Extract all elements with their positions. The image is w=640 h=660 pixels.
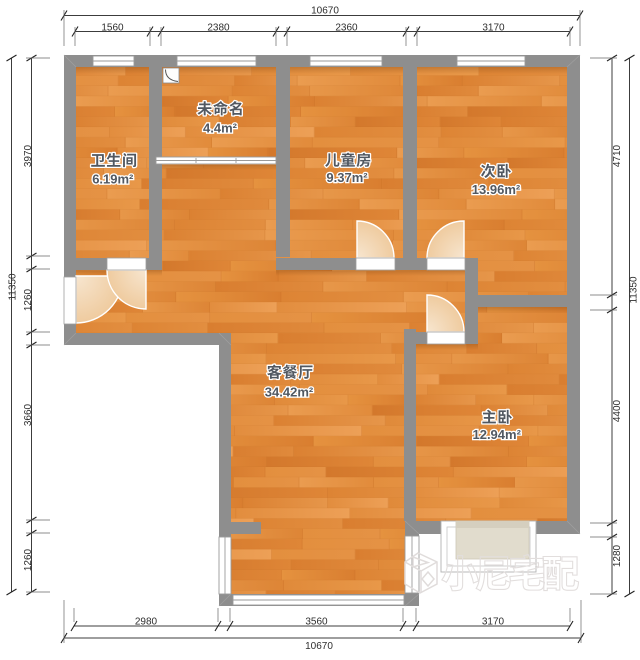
svg-text:3660: 3660	[23, 403, 34, 426]
svg-text:3170: 3170	[482, 22, 505, 33]
svg-text:1280: 1280	[612, 544, 623, 567]
svg-text:4400: 4400	[612, 399, 623, 422]
svg-text:10670: 10670	[305, 641, 333, 652]
svg-text:2360: 2360	[335, 22, 358, 33]
svg-text:34.42m²: 34.42m²	[265, 385, 314, 400]
svg-text:4.4m²: 4.4m²	[203, 121, 238, 136]
svg-text:1560: 1560	[101, 22, 124, 33]
svg-text:3560: 3560	[305, 616, 328, 627]
svg-text:13.96m²: 13.96m²	[472, 182, 521, 197]
svg-text:11350: 11350	[629, 276, 640, 304]
svg-text:6.19m²: 6.19m²	[92, 172, 134, 187]
svg-text:9.37m²: 9.37m²	[326, 170, 368, 185]
svg-text:1260: 1260	[23, 288, 34, 311]
svg-text:2380: 2380	[207, 22, 230, 33]
svg-text:1260: 1260	[23, 548, 34, 571]
svg-text:4710: 4710	[612, 144, 623, 167]
svg-text:11350: 11350	[8, 273, 19, 301]
svg-text:12.94m²: 12.94m²	[472, 427, 521, 442]
svg-text:3970: 3970	[23, 144, 34, 167]
svg-text:10670: 10670	[311, 6, 339, 17]
svg-text:3170: 3170	[482, 616, 505, 627]
svg-text:2980: 2980	[135, 616, 158, 627]
